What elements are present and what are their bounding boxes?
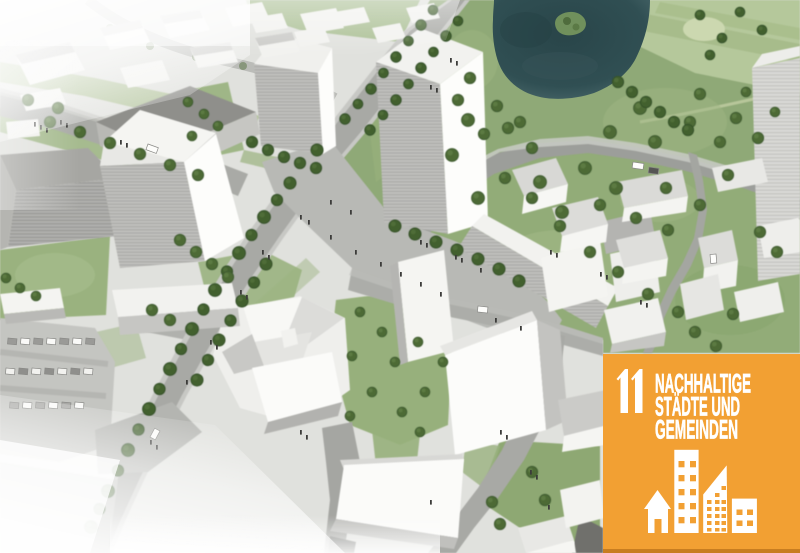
svg-text:GEMEINDEN: GEMEINDEN xyxy=(655,415,738,445)
